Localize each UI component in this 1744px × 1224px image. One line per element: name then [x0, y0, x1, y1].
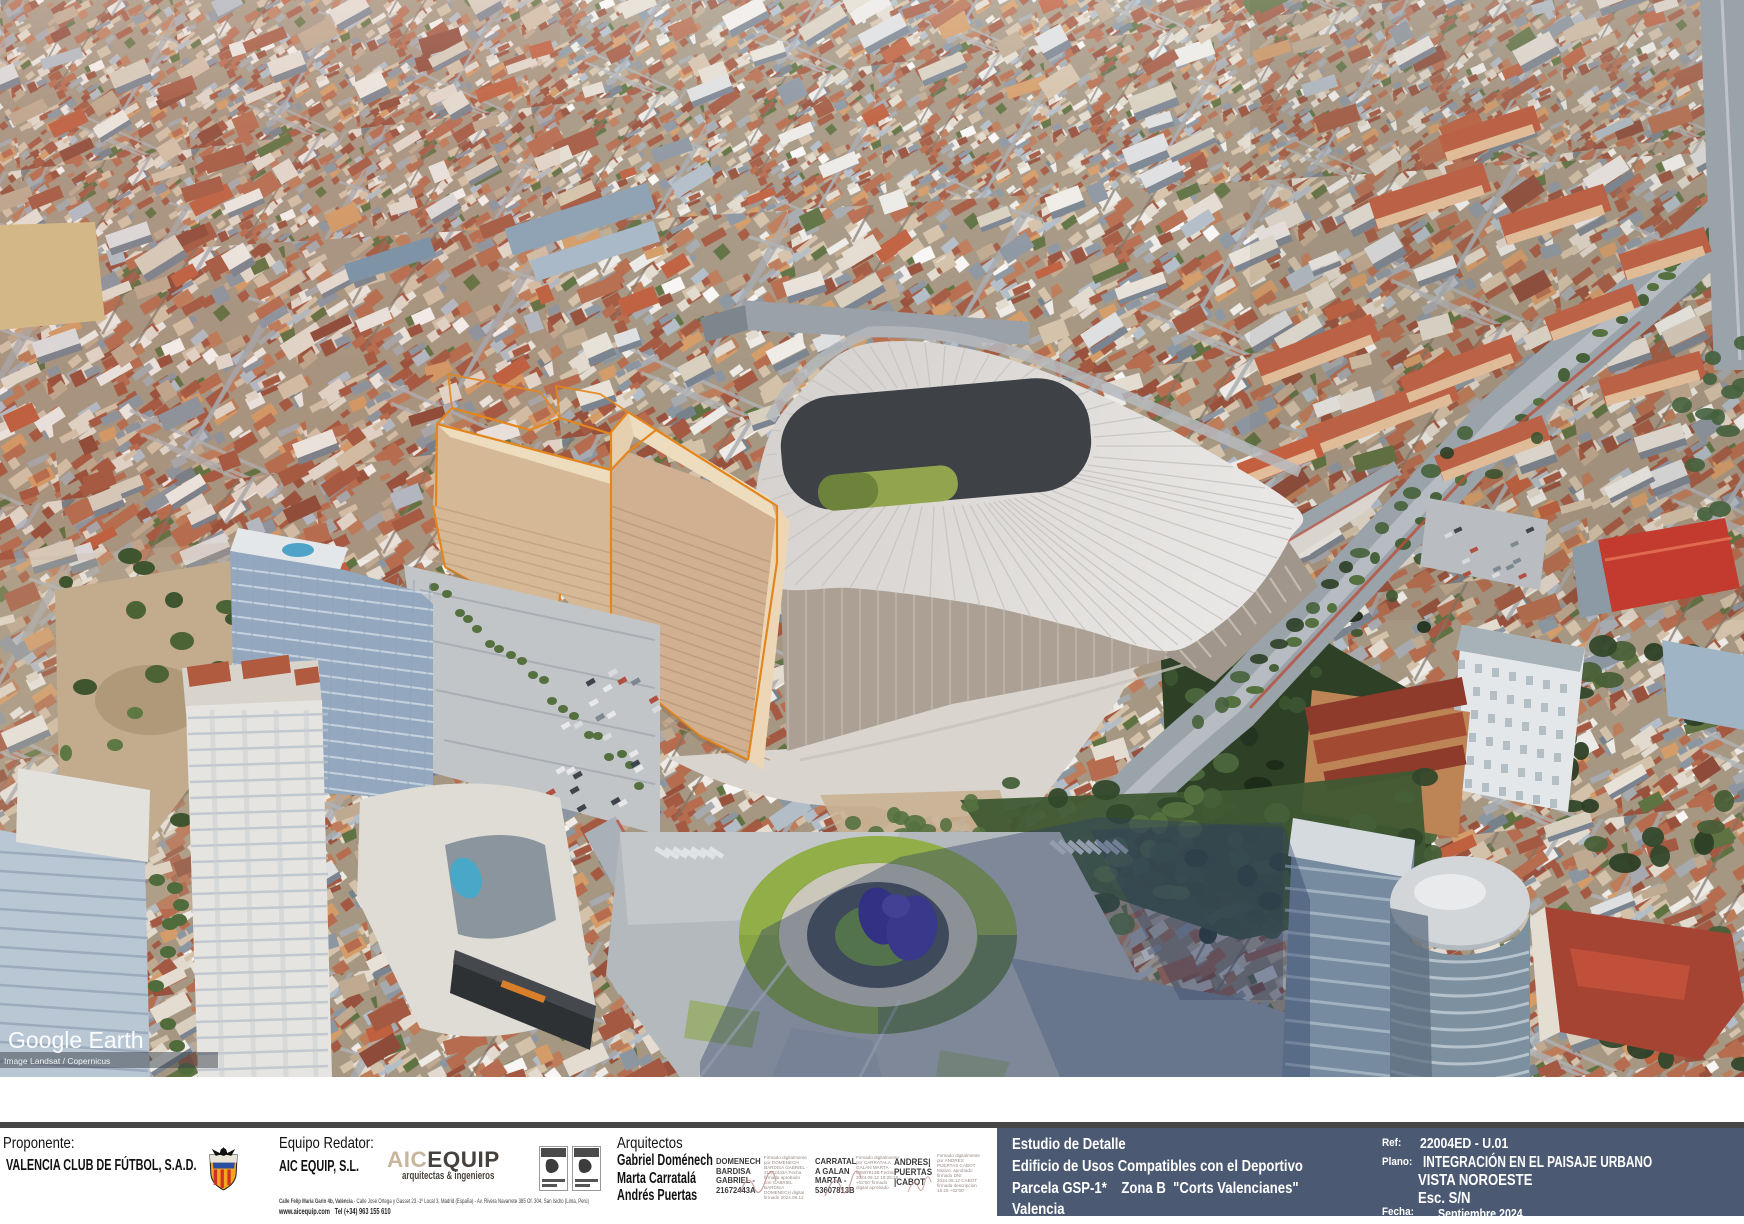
svg-text:Image Landsat / Copernicus: Image Landsat / Copernicus	[4, 1056, 110, 1066]
svg-text:Google Earth: Google Earth	[8, 1027, 144, 1053]
